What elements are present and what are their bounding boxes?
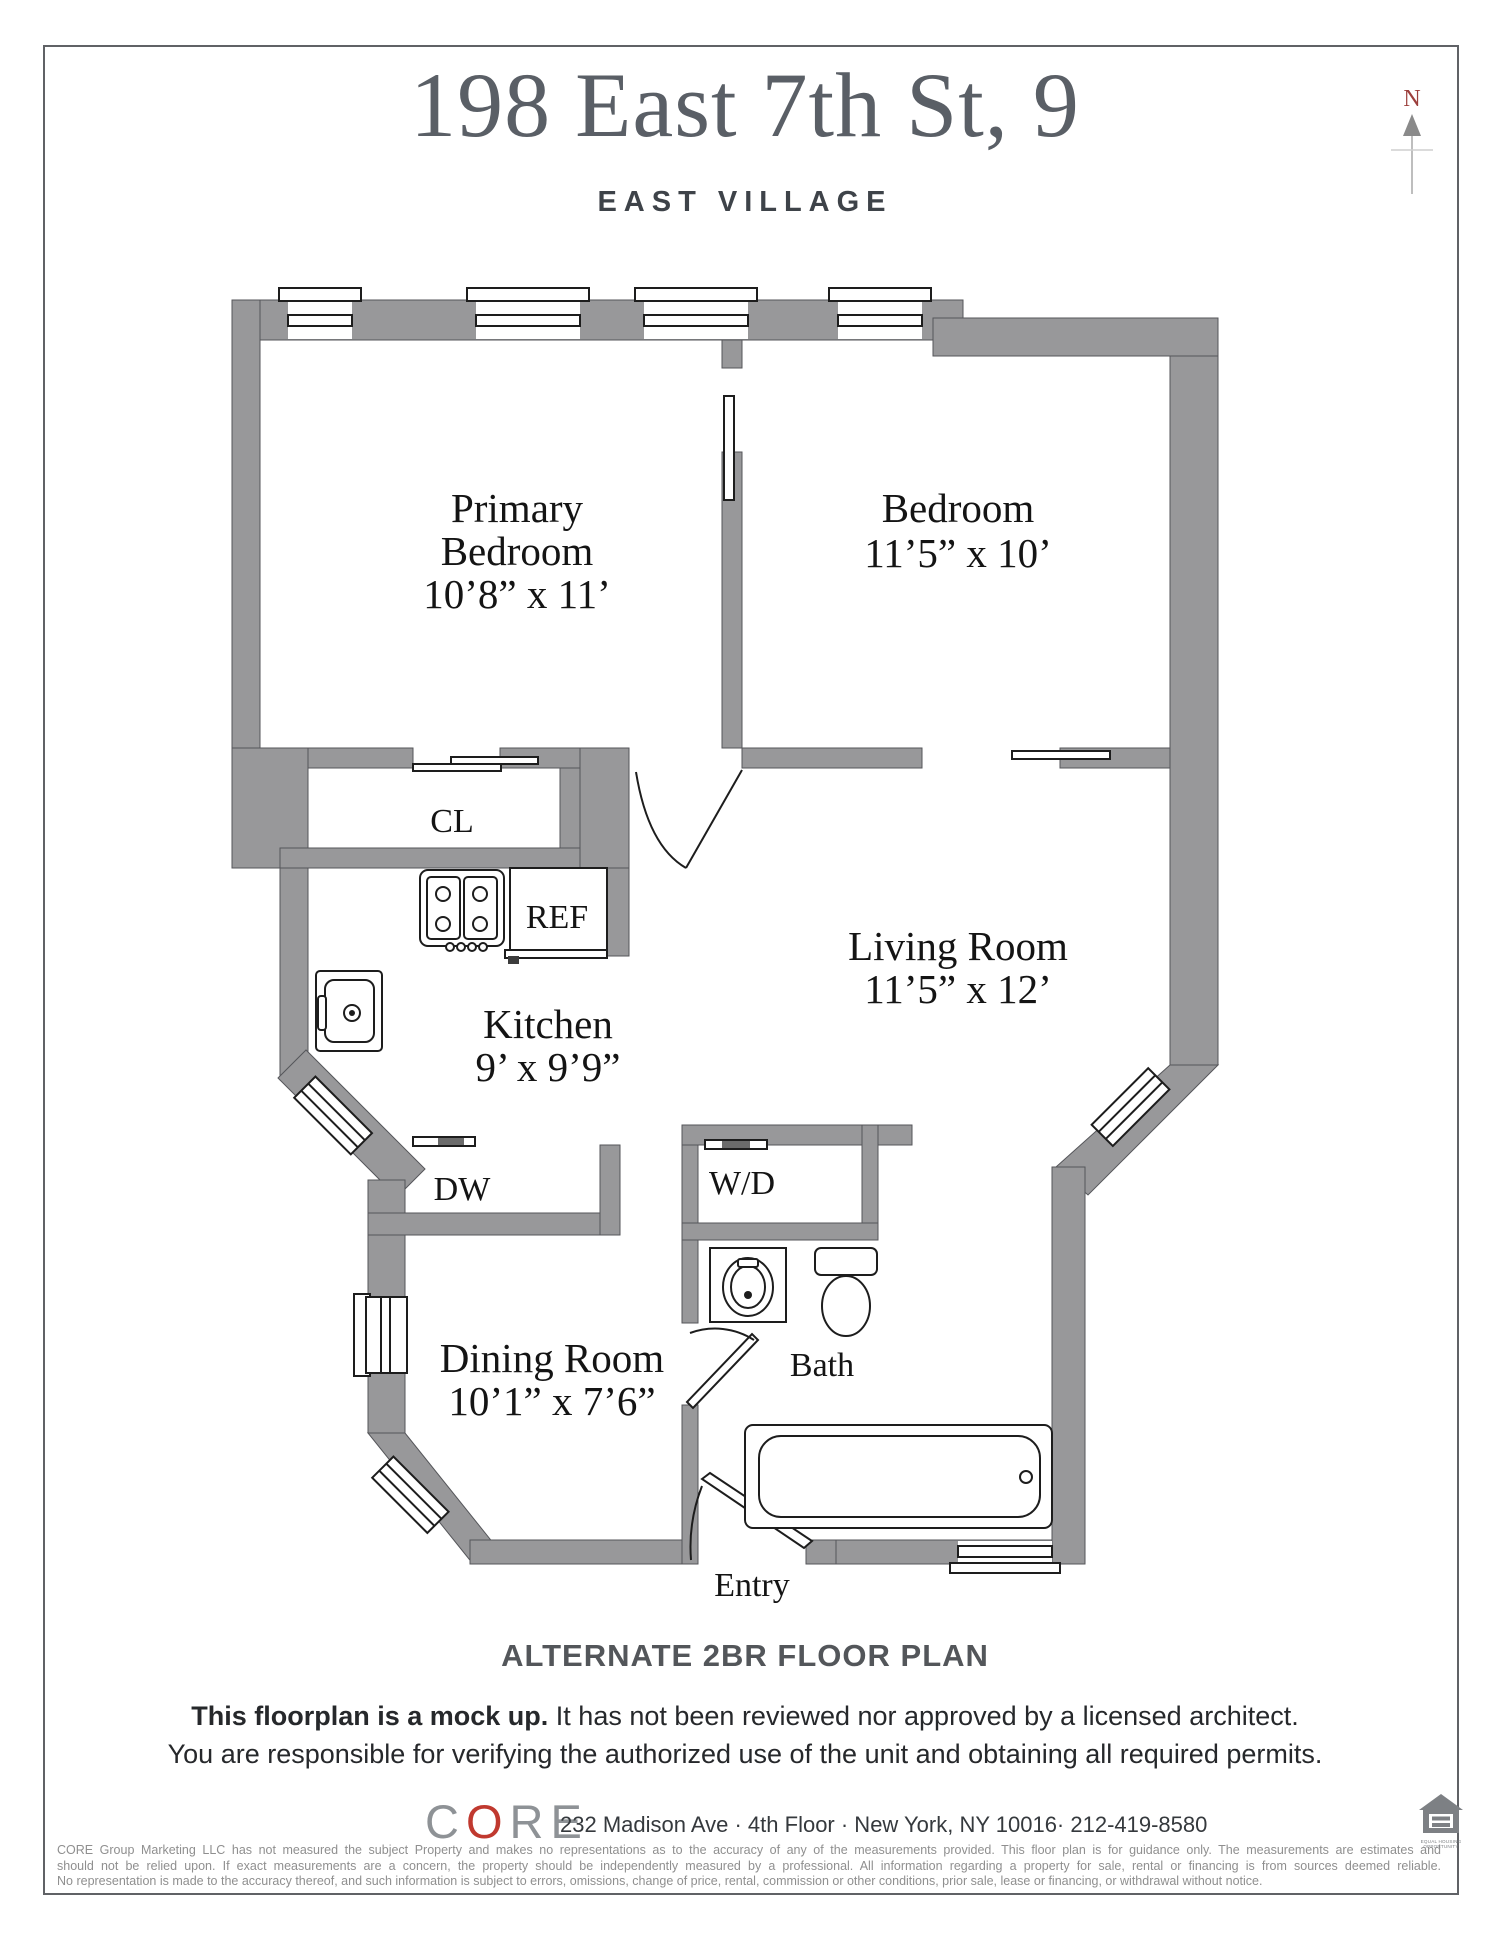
fridge-label: REF xyxy=(526,899,588,936)
window xyxy=(354,1294,407,1376)
bath-label: Bath xyxy=(790,1347,854,1384)
primary-bedroom-dims: 10’8” x 11’ xyxy=(423,571,610,617)
disclaimer: This floorplan is a mock up. It has not … xyxy=(0,1697,1490,1773)
compass-arrowhead xyxy=(1403,114,1421,136)
equal-housing-text2: OPPORTUNITY xyxy=(1418,1844,1464,1849)
kitchen-door xyxy=(636,770,742,868)
window xyxy=(950,1541,1060,1573)
floorplan-page: 198 East 7th St, 9 EAST VILLAGE N xyxy=(0,0,1500,1941)
living-room-dims: 11’5” x 12’ xyxy=(864,966,1051,1012)
dishwasher-vent xyxy=(413,1137,475,1146)
legal-fine-print: CORE Group Marketing LLC has not measure… xyxy=(57,1843,1441,1890)
bathtub-icon xyxy=(745,1425,1052,1528)
legal-line1: CORE Group Marketing LLC has not measure… xyxy=(57,1843,1441,1859)
bedroom-dims: 11’5” x 10’ xyxy=(864,530,1051,576)
dining-room-label: Dining Room xyxy=(440,1335,664,1381)
plan-type-title: ALTERNATE 2BR FLOOR PLAN xyxy=(0,1638,1490,1674)
disclaimer-line2: You are responsible for verifying the au… xyxy=(0,1735,1490,1773)
window xyxy=(635,288,757,339)
closet-sliding-doors xyxy=(413,757,538,771)
disclaimer-rest: It has not been reviewed nor approved by… xyxy=(548,1701,1298,1731)
stove-icon xyxy=(420,870,504,951)
compass-n-label: N xyxy=(1403,86,1420,112)
window xyxy=(279,288,361,339)
primary-bedroom-label2: Bedroom xyxy=(441,528,594,574)
core-logo-c: C xyxy=(425,1795,466,1848)
bath-door xyxy=(687,1329,758,1408)
pocket-door xyxy=(724,396,734,500)
washer-dryer-label: W/D xyxy=(709,1165,775,1202)
bedroom-door xyxy=(1012,751,1110,759)
primary-bedroom-label: Primary xyxy=(451,485,584,531)
disclaimer-bold: This floorplan is a mock up. xyxy=(191,1701,548,1731)
dishwasher-label: DW xyxy=(434,1171,492,1208)
compass-north-icon: N xyxy=(1391,86,1433,194)
window xyxy=(467,288,589,339)
office-address: 232 Madison Ave · 4th Floor · New York, … xyxy=(560,1812,1207,1838)
legal-line3: No representation is made to the accurac… xyxy=(57,1874,1441,1890)
equal-housing-icon: EQUAL HOUSING OPPORTUNITY xyxy=(1418,1792,1464,1849)
dining-room-dims: 10’1” x 7’6” xyxy=(448,1378,655,1424)
entry-label: Entry xyxy=(714,1567,790,1604)
toilet-icon xyxy=(815,1248,877,1336)
living-room-label: Living Room xyxy=(848,923,1068,969)
kitchen-label: Kitchen xyxy=(483,1001,613,1047)
closet-label: CL xyxy=(430,803,473,840)
disclaimer-line1: This floorplan is a mock up. It has not … xyxy=(0,1697,1490,1735)
washer-dryer-vent xyxy=(705,1140,767,1149)
bedroom-label: Bedroom xyxy=(882,485,1035,531)
bathroom-sink-icon xyxy=(710,1248,786,1322)
kitchen-sink-icon xyxy=(316,971,382,1051)
legal-line2: should not be relied upon. If exact meas… xyxy=(57,1859,1441,1875)
window xyxy=(829,288,931,339)
kitchen-dims: 9’ x 9’9” xyxy=(476,1044,621,1090)
core-logo-o: O xyxy=(466,1795,510,1848)
